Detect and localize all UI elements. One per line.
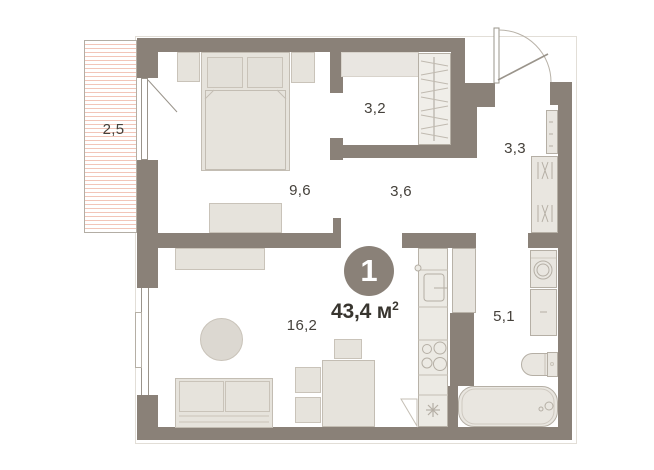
room-label-wardrobe: 3,2 <box>350 101 400 117</box>
room-label-balcony: 2,5 <box>87 122 140 138</box>
kitchen-counter-run <box>418 248 448 427</box>
living-radiator <box>135 312 142 368</box>
entry-wardrobe <box>531 156 558 233</box>
nightstand-left <box>177 52 200 82</box>
dining-chair-2 <box>295 397 321 423</box>
wall-entry-top <box>464 83 495 107</box>
dining-chair-1 <box>295 367 321 393</box>
wall-right-step <box>550 82 558 105</box>
area-exponent: 2 <box>392 299 398 313</box>
area-value: 43,4 <box>331 300 371 323</box>
room-label-living: 16,2 <box>274 318 330 334</box>
wall-bottom <box>137 427 572 440</box>
kitchen-tall-cabinet <box>452 248 476 313</box>
room-label-entry: 3,3 <box>490 141 540 157</box>
wall-bathroom-top <box>528 233 558 248</box>
wall-left-upper <box>137 38 158 78</box>
wall-wardrobe-right <box>451 38 465 158</box>
living-window-frame <box>141 288 149 395</box>
tv-stand <box>175 248 265 270</box>
dining-chair-top <box>334 339 362 359</box>
toilet-bowl <box>521 353 550 376</box>
sofa-cushion-left <box>179 381 224 412</box>
bed-pillow-right <box>247 57 283 88</box>
wall-entry-left <box>464 107 477 158</box>
wardrobe-hanger-unit <box>418 53 451 145</box>
wall-kitchen-bathroom <box>450 313 474 386</box>
bed-blanket <box>205 90 286 170</box>
wall-bedroom-living <box>158 233 341 248</box>
washing-machine <box>530 250 557 288</box>
wall-kitchen-top <box>402 233 476 248</box>
sofa-cushion-right <box>225 381 270 412</box>
wall-right <box>558 82 572 440</box>
nightstand-right <box>291 52 315 83</box>
balcony-door-frame <box>141 78 148 160</box>
room-label-hallway: 3,6 <box>376 184 426 200</box>
wall-bedroom-hall-lower <box>330 138 343 160</box>
wall-top <box>137 38 465 52</box>
bedroom-desk <box>209 203 282 233</box>
room-label-bathroom: 5,1 <box>478 309 530 325</box>
bathtub <box>458 386 558 427</box>
bathroom-cabinet <box>530 289 557 336</box>
entry-shelf <box>546 110 558 154</box>
rooms-count-badge: 1 <box>344 246 394 296</box>
bed-pillow-left <box>207 57 243 88</box>
floor-plan: 2,5 9,6 3,2 3,6 3,3 16,2 5,1 1 43,4 м2 <box>0 0 654 470</box>
wall-wardrobe-bottom <box>341 145 465 158</box>
toilet-tank <box>547 352 558 377</box>
room-label-bedroom: 9,6 <box>275 183 325 199</box>
wall-left-middle <box>137 160 158 288</box>
wardrobe-shelf <box>341 52 419 77</box>
total-area-label: 43,4 м2 <box>331 299 441 324</box>
dining-table <box>322 360 375 427</box>
round-table <box>200 318 243 361</box>
wall-bedroom-living-stub <box>333 218 341 233</box>
area-unit: м <box>377 300 392 323</box>
